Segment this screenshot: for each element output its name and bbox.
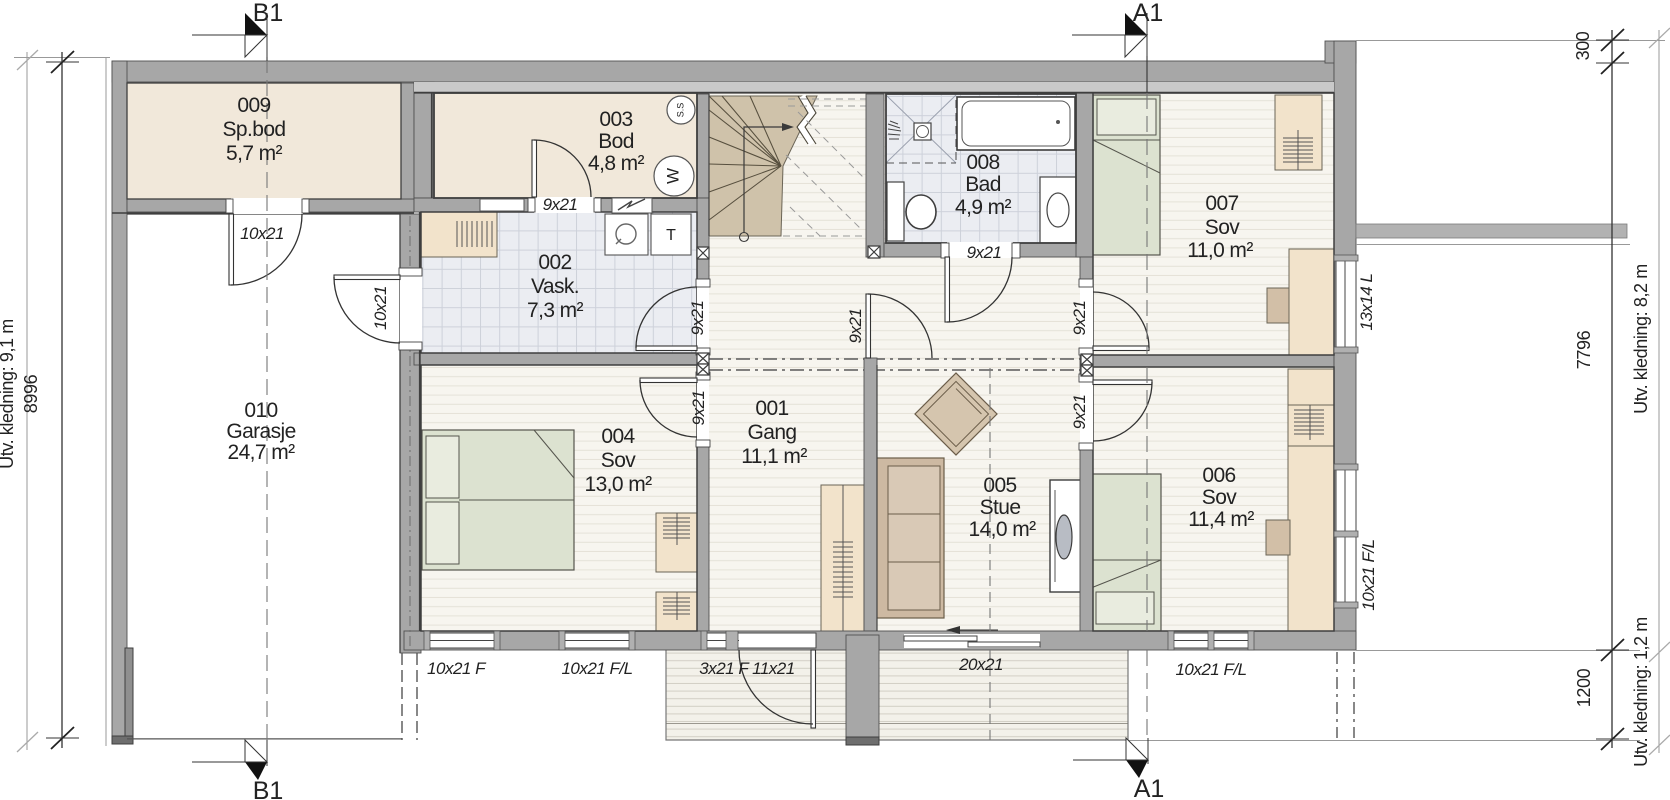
svg-text:Utv. kledning: 1,2 m: Utv. kledning: 1,2 m — [1631, 617, 1651, 767]
svg-text:T: T — [666, 227, 676, 244]
svg-text:9x21: 9x21 — [846, 309, 865, 344]
svg-text:006: 006 — [1202, 464, 1235, 487]
svg-text:9x21: 9x21 — [689, 391, 708, 426]
svg-text:9x21: 9x21 — [688, 301, 707, 336]
svg-text:Sov: Sov — [1202, 486, 1237, 509]
svg-text:10x21 F/L: 10x21 F/L — [1359, 539, 1378, 610]
svg-text:005: 005 — [983, 474, 1016, 497]
svg-text:W: W — [663, 168, 682, 184]
svg-text:002: 002 — [538, 251, 571, 274]
svg-text:10x21: 10x21 — [371, 286, 390, 330]
svg-text:9x21: 9x21 — [1070, 301, 1089, 336]
svg-text:Utv. kledning: 8,2 m: Utv. kledning: 8,2 m — [1631, 264, 1651, 414]
svg-text:Vask.: Vask. — [531, 275, 579, 298]
svg-text:003: 003 — [599, 108, 632, 131]
svg-text:004: 004 — [601, 425, 635, 448]
svg-text:B1: B1 — [253, 0, 284, 27]
svg-text:Garasje: Garasje — [226, 420, 295, 443]
svg-text:4,8 m²: 4,8 m² — [588, 152, 645, 175]
svg-text:9x21: 9x21 — [1070, 395, 1089, 430]
svg-text:B1: B1 — [253, 777, 284, 800]
svg-text:14,0 m²: 14,0 m² — [969, 518, 1037, 541]
svg-text:7,3 m²: 7,3 m² — [527, 299, 584, 322]
svg-text:A1: A1 — [1133, 0, 1164, 27]
svg-text:7796: 7796 — [1574, 330, 1594, 369]
svg-text:11,1 m²: 11,1 m² — [741, 445, 807, 468]
svg-text:S.S: S.S — [675, 103, 685, 118]
svg-text:11,4 m²: 11,4 m² — [1188, 508, 1254, 531]
svg-text:007: 007 — [1205, 192, 1238, 215]
svg-text:300: 300 — [1573, 31, 1593, 60]
svg-text:Sov: Sov — [601, 449, 636, 472]
svg-text:Stue: Stue — [980, 496, 1021, 519]
svg-text:010: 010 — [244, 399, 277, 422]
svg-text:10x21 F/L: 10x21 F/L — [1175, 660, 1246, 679]
svg-text:4,9 m²: 4,9 m² — [955, 196, 1012, 219]
svg-text:Bod: Bod — [598, 130, 634, 153]
svg-text:10x21 F/L: 10x21 F/L — [561, 659, 632, 678]
svg-text:Utv. kledning: 9,1 m: Utv. kledning: 9,1 m — [0, 319, 17, 469]
svg-text:13x14 L: 13x14 L — [1357, 273, 1376, 330]
svg-text:20x21: 20x21 — [958, 655, 1003, 674]
svg-text:Sov: Sov — [1205, 216, 1240, 239]
svg-text:24,7 m²: 24,7 m² — [228, 441, 296, 464]
svg-text:A1: A1 — [1134, 775, 1165, 800]
svg-text:001: 001 — [755, 397, 788, 420]
svg-text:008: 008 — [966, 151, 999, 174]
svg-text:11,0 m²: 11,0 m² — [1187, 239, 1253, 262]
svg-text:009: 009 — [237, 94, 270, 117]
svg-text:1200: 1200 — [1574, 668, 1594, 707]
svg-text:Sp.bod: Sp.bod — [223, 118, 286, 141]
svg-text:13,0 m²: 13,0 m² — [585, 473, 653, 496]
svg-text:10x21 F: 10x21 F — [427, 659, 487, 678]
svg-text:9x21: 9x21 — [543, 195, 578, 214]
svg-text:3x21 F 11x21: 3x21 F 11x21 — [699, 659, 794, 678]
svg-text:9x21: 9x21 — [967, 243, 1002, 262]
svg-text:5,7 m²: 5,7 m² — [226, 142, 283, 165]
svg-text:10x21: 10x21 — [240, 224, 284, 243]
svg-text:Gang: Gang — [748, 421, 797, 444]
svg-text:8996: 8996 — [21, 374, 41, 413]
svg-text:Bad: Bad — [965, 173, 1001, 196]
